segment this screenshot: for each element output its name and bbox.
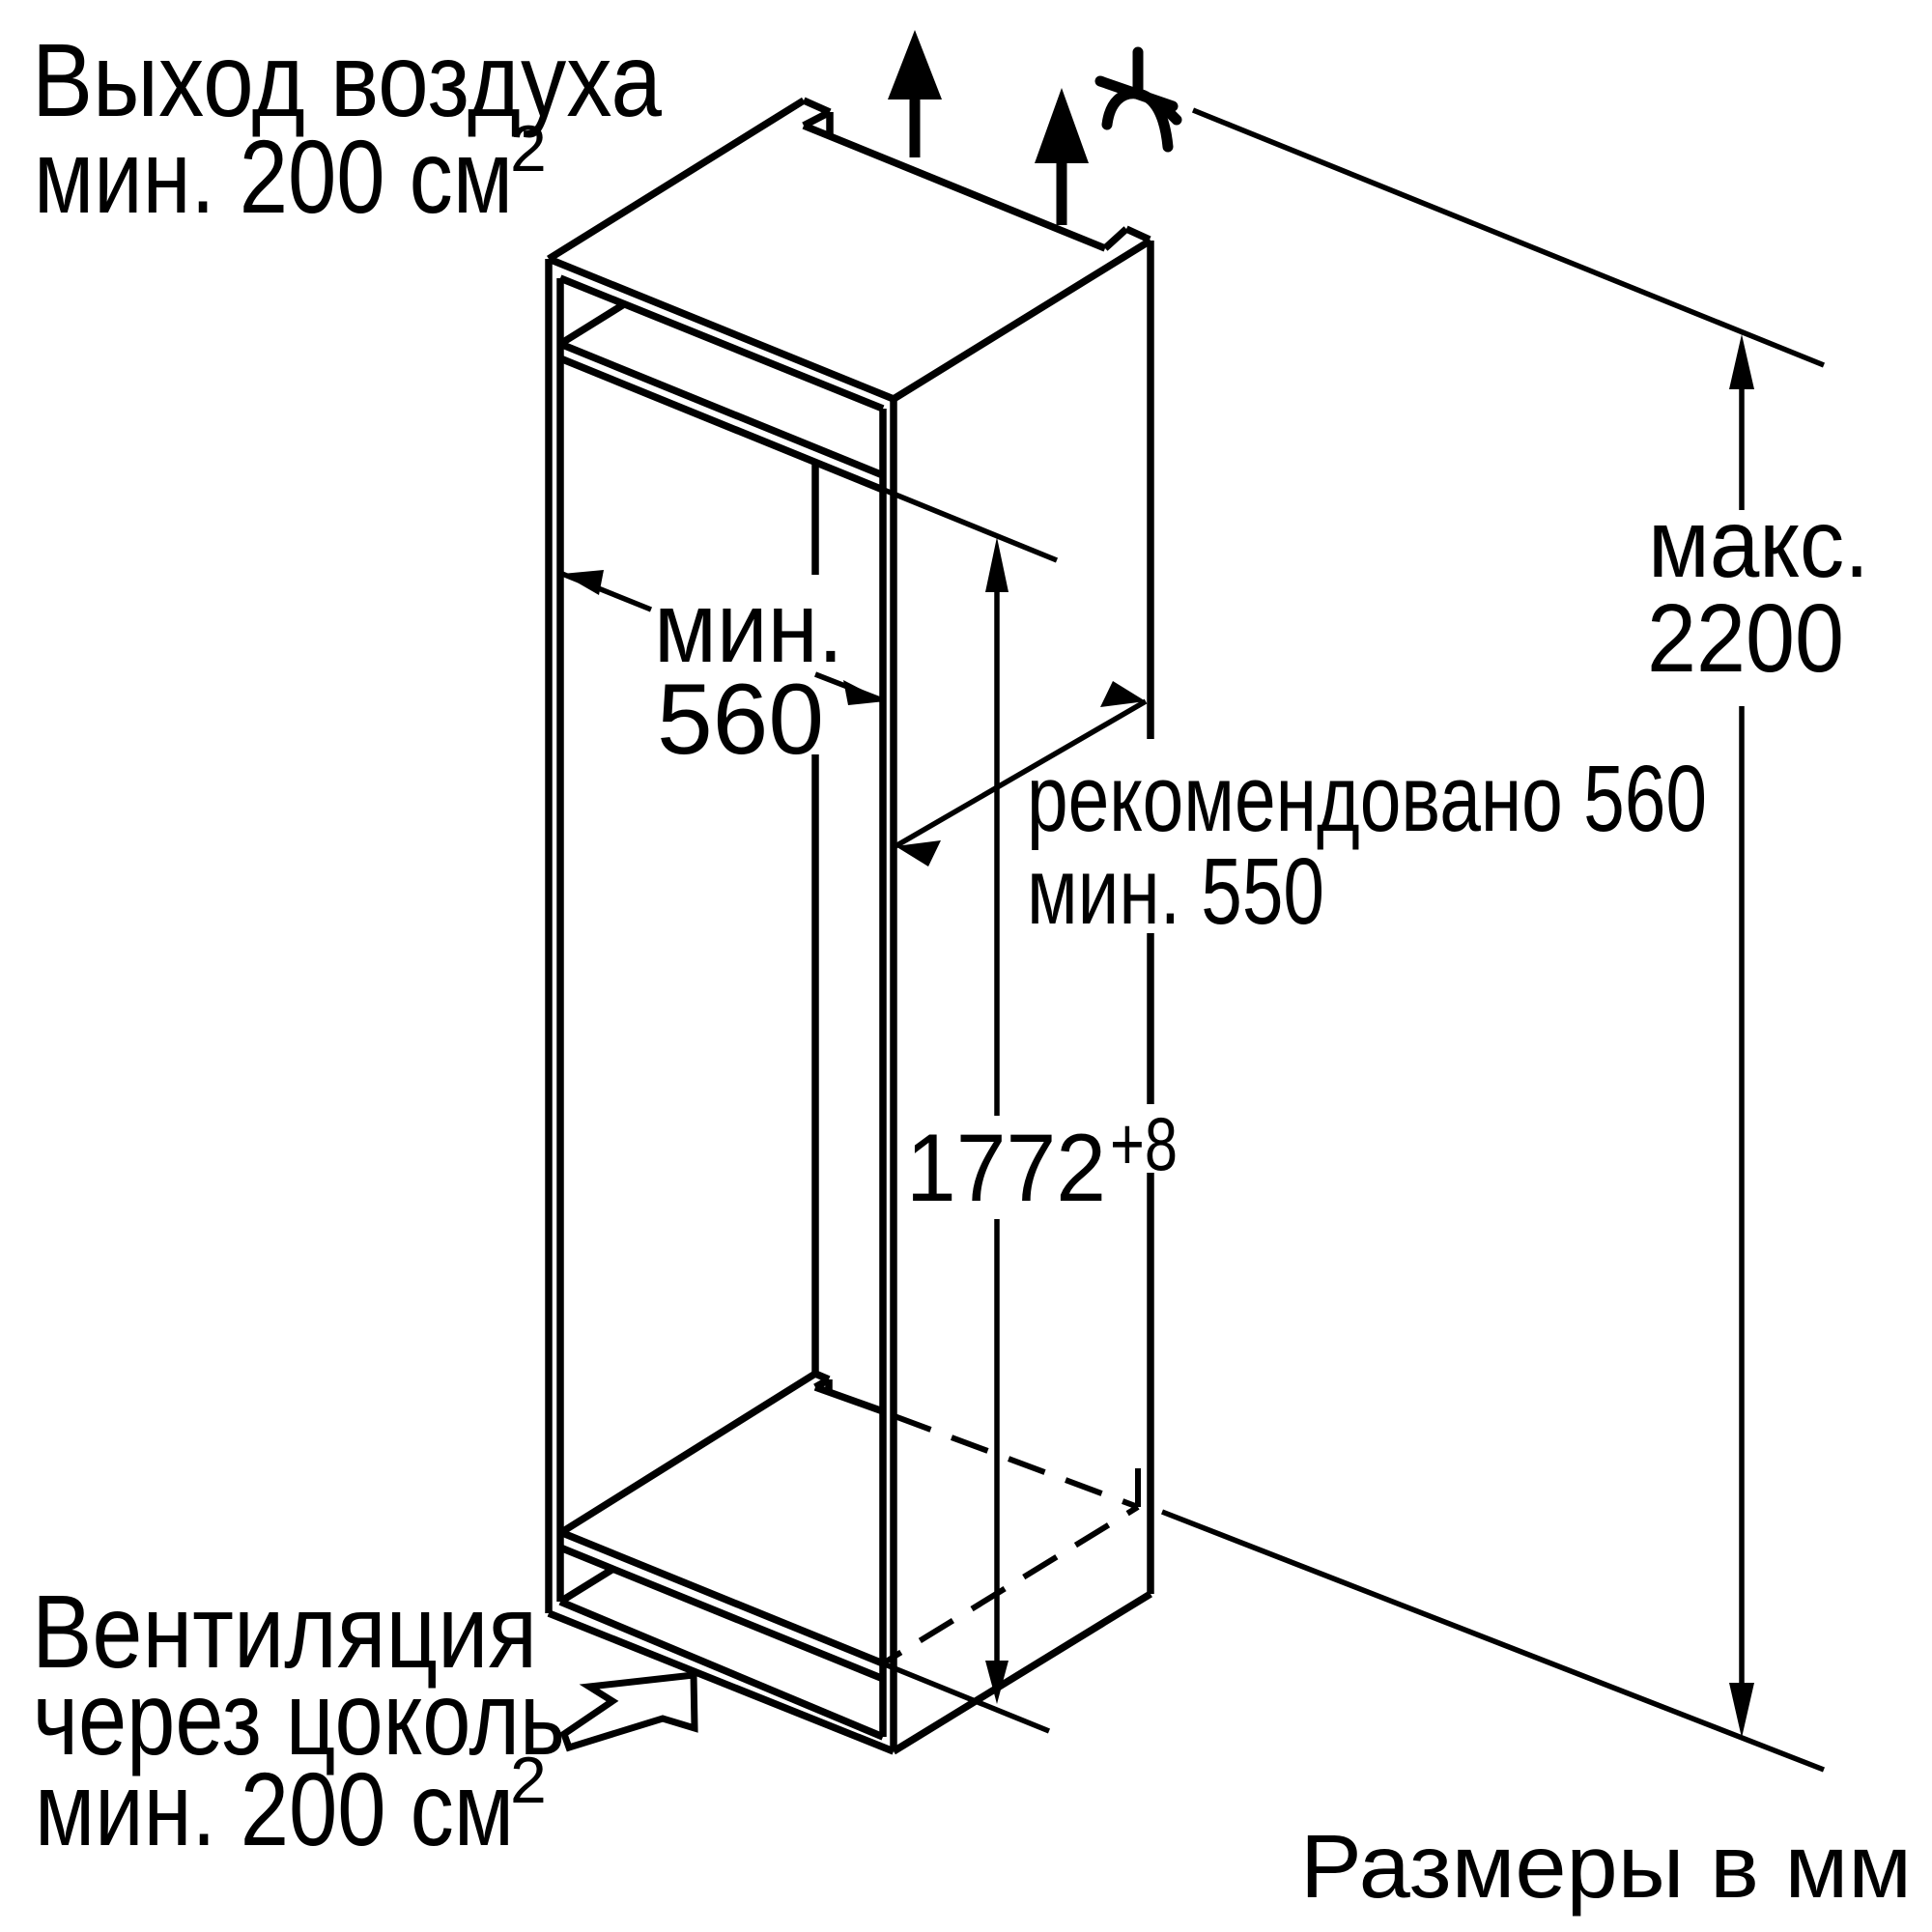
svg-text:+8: +8	[1110, 1101, 1178, 1186]
svg-text:2: 2	[510, 1744, 547, 1817]
svg-text:макс.: макс.	[1648, 490, 1869, 598]
svg-text:2: 2	[510, 112, 547, 185]
svg-text:мин. 200 см: мин. 200 см	[34, 118, 513, 235]
svg-text:2200: 2200	[1647, 584, 1844, 693]
svg-text:560: 560	[657, 664, 824, 776]
svg-text:Размеры в мм: Размеры в мм	[1300, 1816, 1912, 1917]
svg-text:мин. 200 см: мин. 200 см	[35, 1750, 514, 1867]
svg-text:1772: 1772	[906, 1114, 1106, 1221]
svg-text:мин. 550: мин. 550	[1027, 838, 1324, 944]
svg-text:рекомендовано 560: рекомендовано 560	[1027, 746, 1707, 851]
